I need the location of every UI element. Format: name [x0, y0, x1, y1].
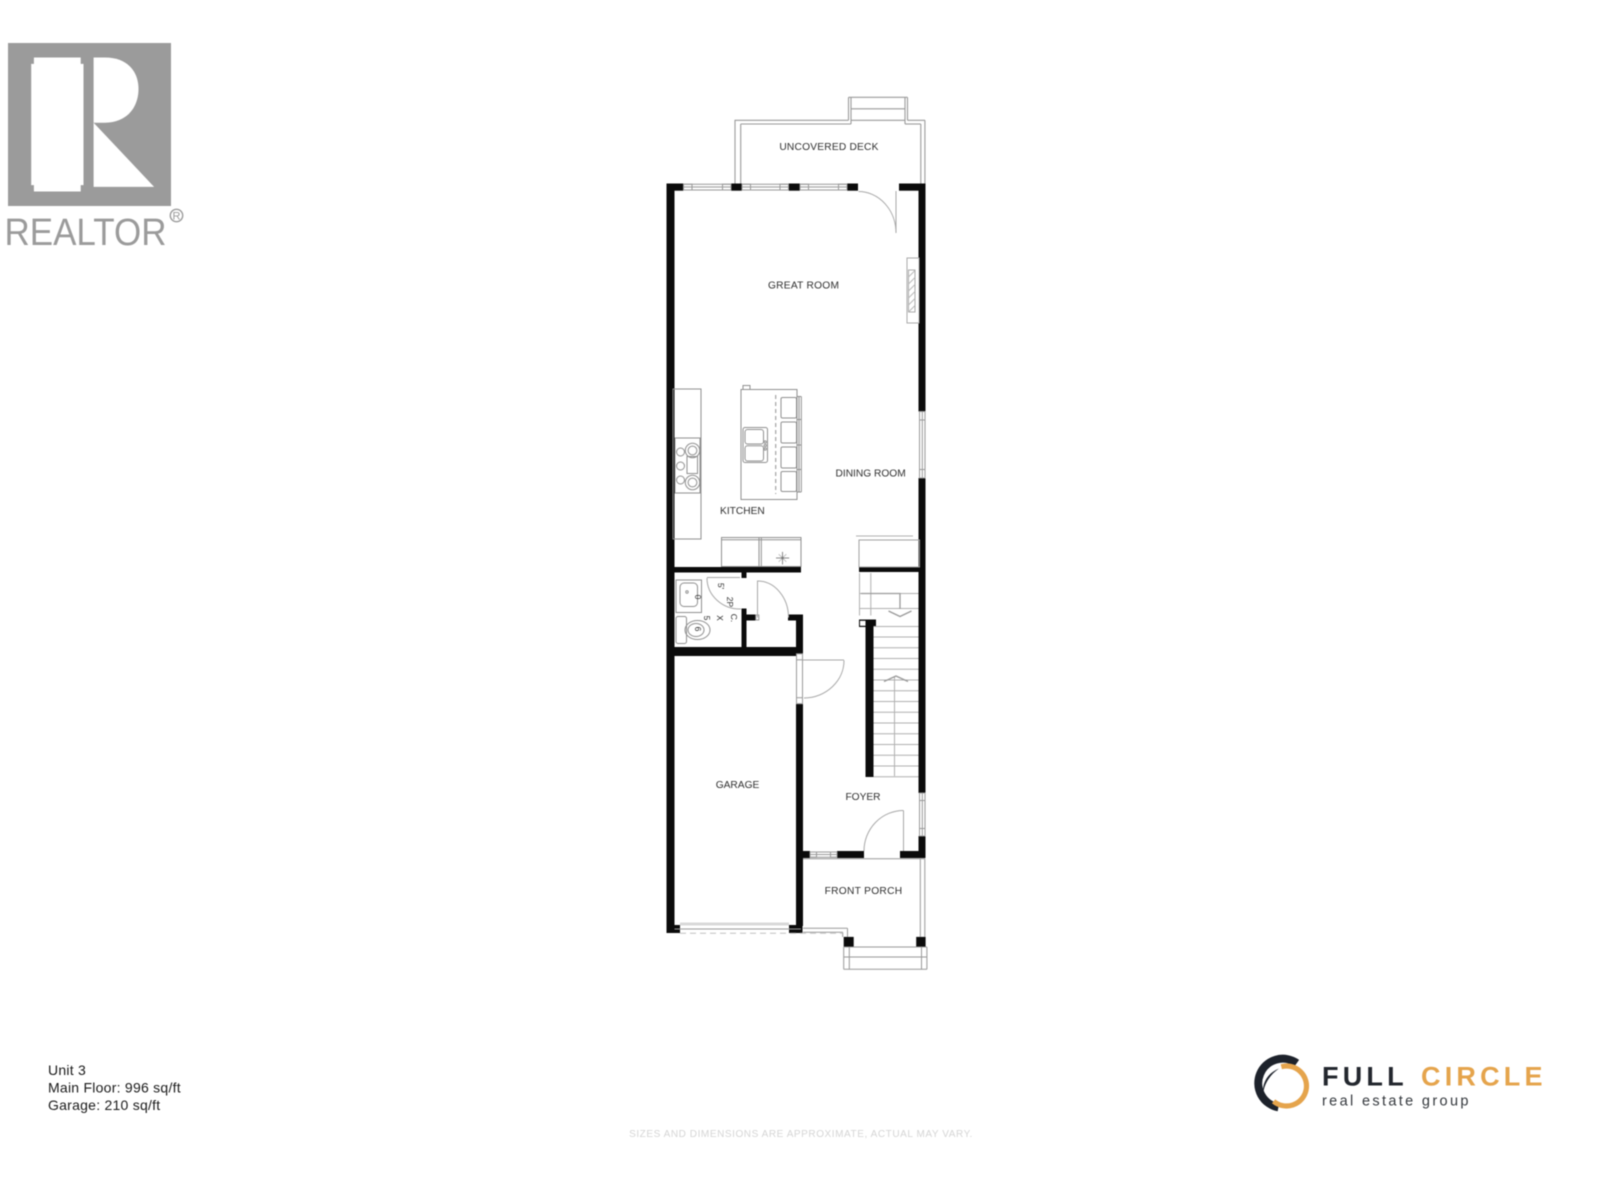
svg-text:Garage: 210 sq/ft: Garage: 210 sq/ft [48, 1097, 160, 1113]
svg-text:Unit 3: Unit 3 [48, 1062, 86, 1078]
svg-text:CIRCLE: CIRCLE [1421, 1062, 1547, 1092]
svg-text:2P: 2P [725, 597, 735, 608]
svg-text:KITCHEN: KITCHEN [720, 506, 765, 517]
svg-text:FULL: FULL [1322, 1062, 1408, 1092]
svg-text:GREAT ROOM: GREAT ROOM [768, 281, 839, 292]
svg-text:6: 6 [693, 627, 703, 632]
svg-text:Main Floor: 996 sq/ft: Main Floor: 996 sq/ft [48, 1079, 181, 1095]
svg-text:FRONT PORCH: FRONT PORCH [825, 886, 903, 897]
svg-text:5': 5' [716, 583, 726, 590]
svg-text:SIZES AND DIMENSIONS ARE APPRO: SIZES AND DIMENSIONS ARE APPROXIMATE, AC… [629, 1129, 973, 1140]
svg-text:GARAGE: GARAGE [716, 780, 760, 791]
svg-text:C.: C. [729, 614, 739, 623]
svg-text:FOYER: FOYER [845, 792, 880, 803]
svg-text:real estate group: real estate group [1322, 1094, 1471, 1110]
svg-text:X: X [715, 615, 725, 621]
svg-text:REALTOR: REALTOR [5, 212, 167, 254]
svg-text:5: 5 [702, 616, 712, 621]
svg-text:0: 0 [693, 595, 703, 600]
svg-text:R: R [173, 211, 181, 223]
svg-text:UNCOVERED DECK: UNCOVERED DECK [779, 142, 878, 153]
svg-text:DINING ROOM: DINING ROOM [836, 469, 906, 480]
